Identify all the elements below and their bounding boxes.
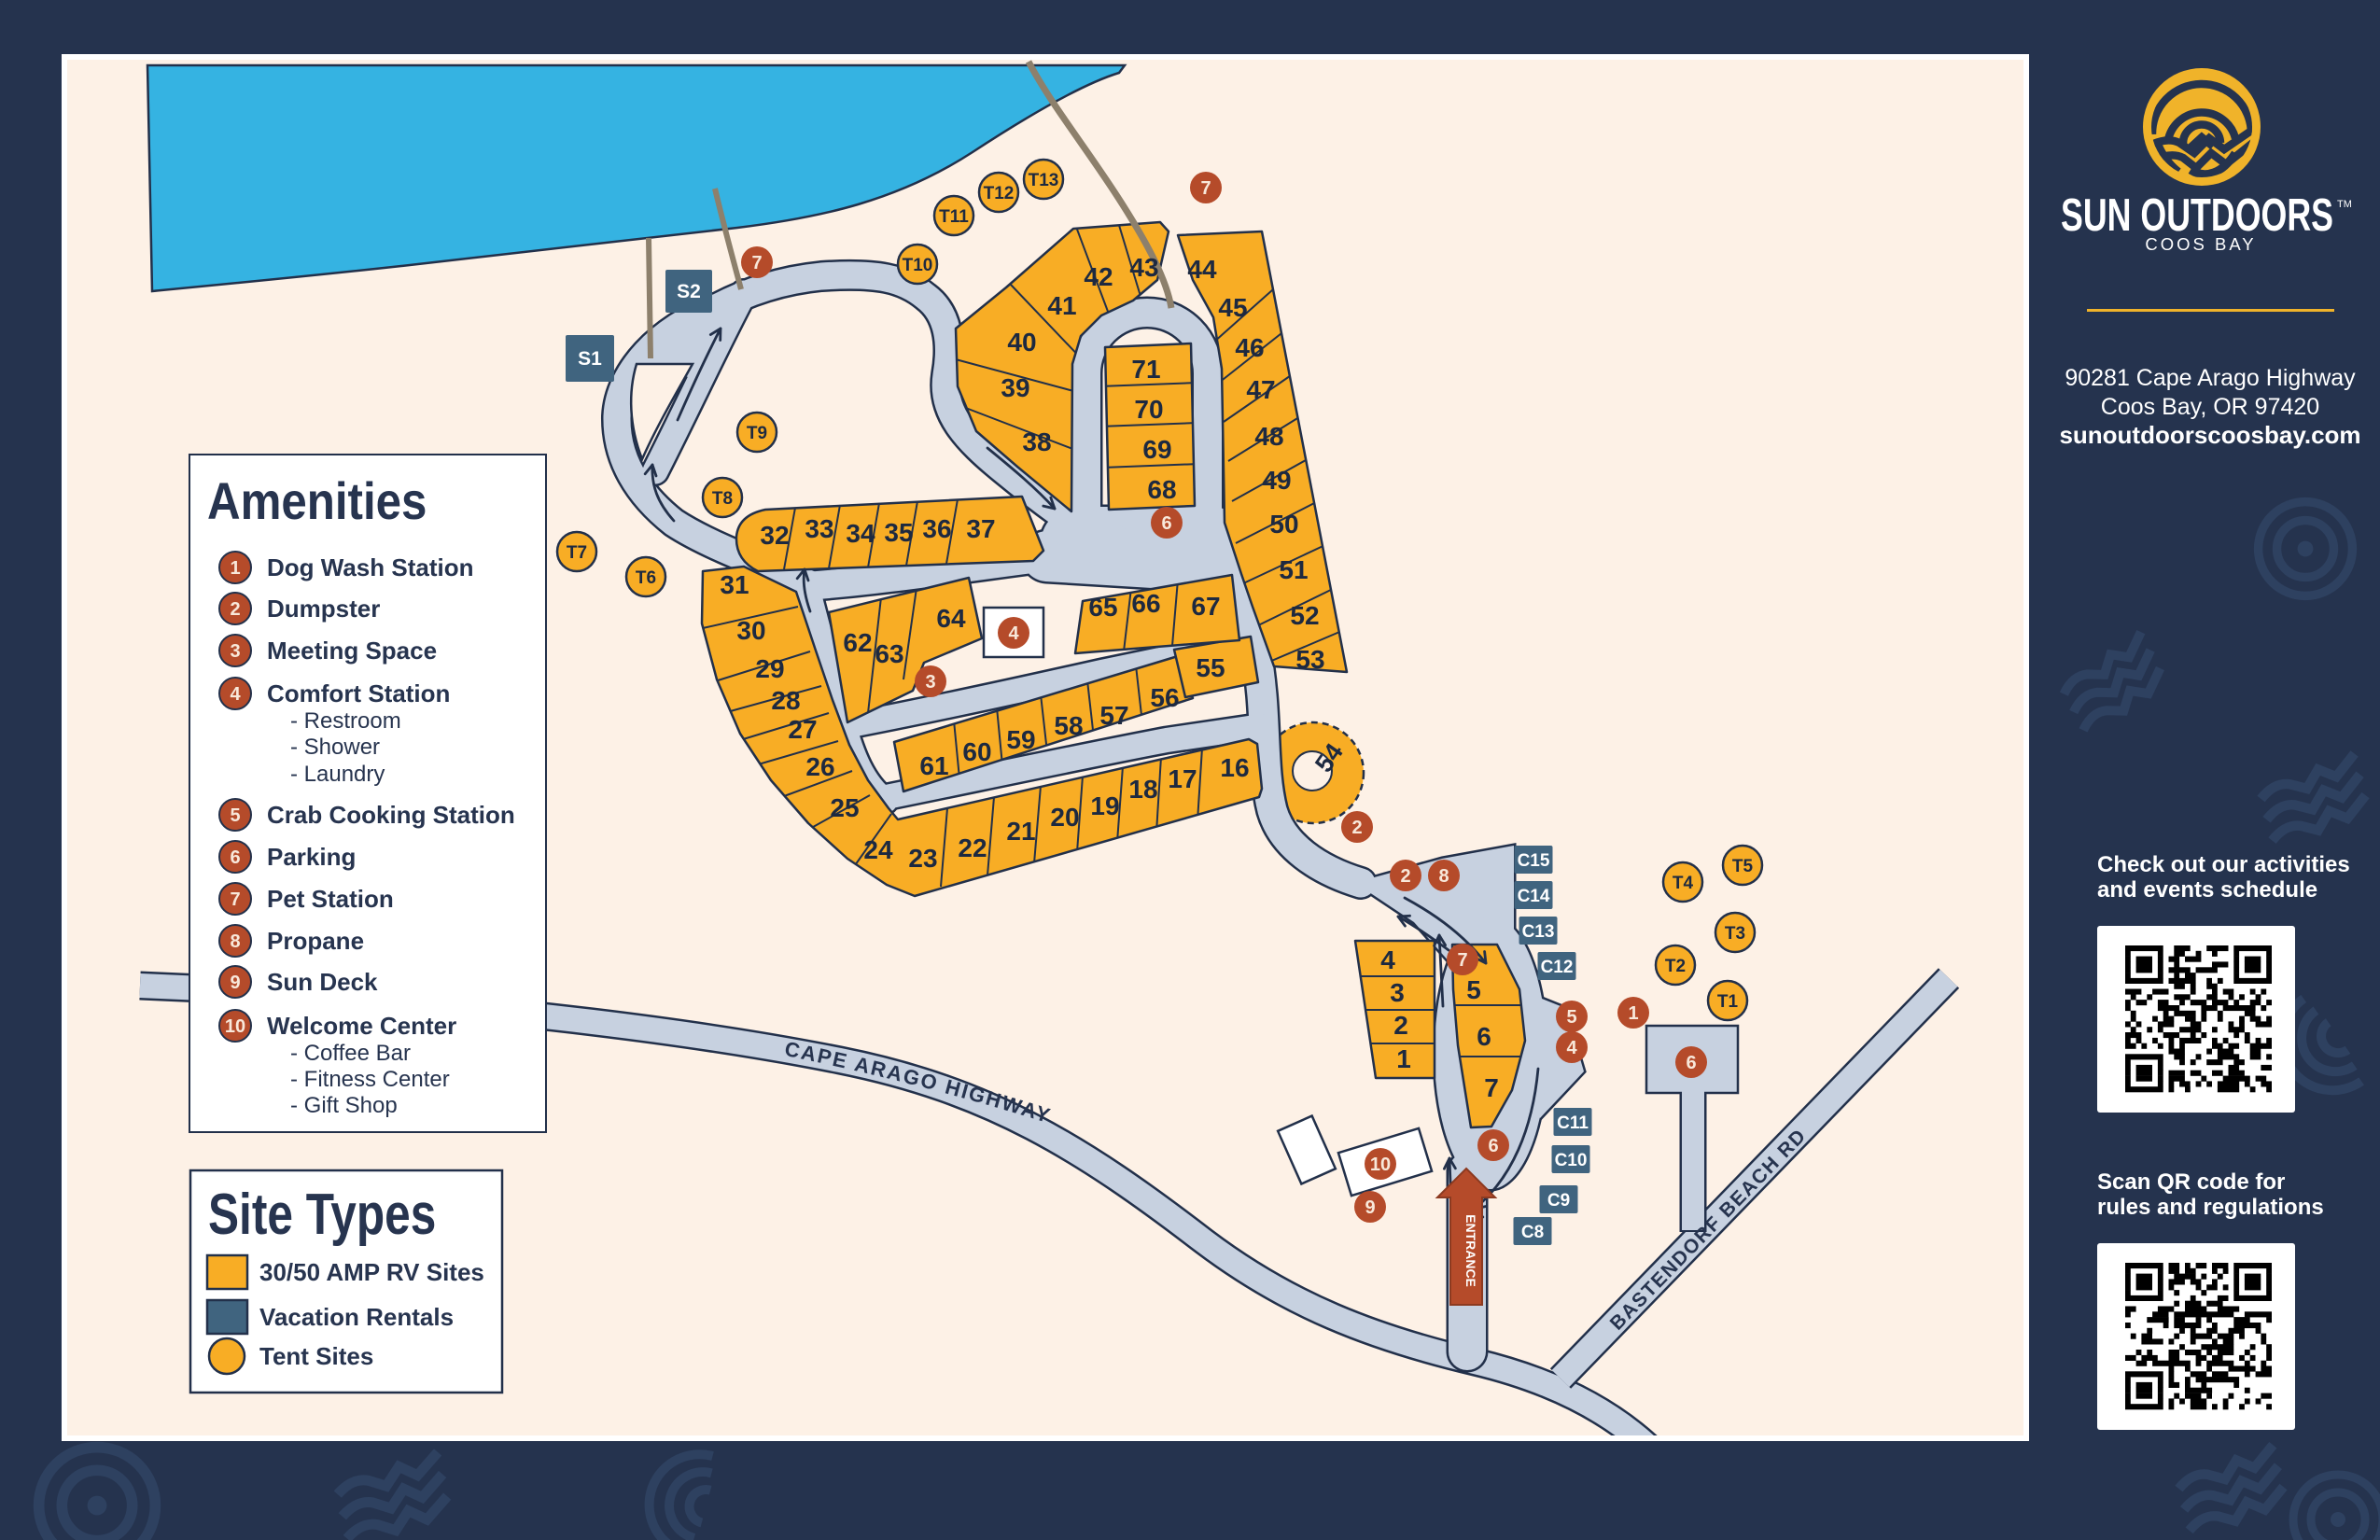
svg-text:32: 32	[760, 521, 789, 550]
svg-text:23: 23	[908, 844, 937, 873]
svg-text:Check out our activities: Check out our activities	[2097, 852, 2350, 877]
svg-text:8: 8	[230, 931, 240, 952]
svg-text:68: 68	[1147, 475, 1176, 504]
svg-text:49: 49	[1262, 466, 1291, 495]
svg-text:ENTRANCE: ENTRANCE	[1463, 1214, 1478, 1287]
svg-text:Meeting Space: Meeting Space	[267, 637, 437, 665]
svg-text:Parking: Parking	[267, 843, 356, 871]
svg-text:6: 6	[1686, 1053, 1696, 1073]
svg-text:64: 64	[936, 604, 966, 633]
svg-text:T3: T3	[1725, 924, 1745, 944]
svg-text:C15: C15	[1518, 851, 1550, 871]
svg-text:T13: T13	[1029, 171, 1059, 190]
svg-text:Tent Sites: Tent Sites	[259, 1342, 373, 1370]
svg-text:53: 53	[1295, 645, 1324, 674]
svg-text:46: 46	[1235, 333, 1264, 362]
svg-text:- Gift Shop: - Gift Shop	[290, 1093, 398, 1118]
svg-text:65: 65	[1088, 593, 1117, 622]
svg-text:4: 4	[1008, 623, 1019, 644]
svg-text:26: 26	[805, 752, 834, 781]
svg-text:Site Types: Site Types	[208, 1182, 436, 1247]
svg-text:5: 5	[1566, 1007, 1576, 1028]
svg-text:44: 44	[1187, 255, 1217, 284]
svg-text:Coos Bay, OR 97420: Coos Bay, OR 97420	[2101, 394, 2319, 420]
svg-text:9: 9	[230, 973, 240, 993]
svg-text:61: 61	[919, 751, 948, 780]
svg-text:T11: T11	[939, 207, 969, 227]
svg-text:Crab Cooking Station: Crab Cooking Station	[267, 801, 515, 829]
svg-text:Amenities: Amenities	[207, 472, 427, 531]
svg-text:2: 2	[1400, 866, 1410, 887]
svg-text:C9: C9	[1547, 1191, 1570, 1211]
svg-text:58: 58	[1054, 711, 1083, 740]
svg-text:C14: C14	[1518, 887, 1550, 906]
svg-text:35: 35	[884, 518, 913, 547]
svg-text:C8: C8	[1521, 1223, 1544, 1242]
svg-text:29: 29	[755, 654, 784, 683]
svg-text:Vacation Rentals: Vacation Rentals	[259, 1303, 454, 1331]
svg-text:2: 2	[230, 599, 240, 620]
svg-text:5: 5	[1466, 975, 1481, 1004]
svg-text:T1: T1	[1717, 992, 1739, 1012]
svg-text:66: 66	[1131, 589, 1160, 618]
svg-text:T2: T2	[1665, 957, 1686, 976]
svg-text:T10: T10	[903, 256, 933, 275]
svg-text:30/50 AMP RV Sites: 30/50 AMP RV Sites	[259, 1258, 484, 1286]
svg-text:Welcome Center: Welcome Center	[267, 1012, 456, 1040]
svg-text:Sun Deck: Sun Deck	[267, 968, 378, 996]
svg-text:37: 37	[966, 514, 995, 543]
svg-text:- Coffee Bar: - Coffee Bar	[290, 1041, 411, 1066]
svg-text:C10: C10	[1555, 1151, 1588, 1170]
svg-text:C13: C13	[1522, 922, 1555, 942]
svg-text:40: 40	[1007, 328, 1036, 357]
svg-text:2: 2	[1351, 818, 1362, 838]
svg-text:4: 4	[1380, 945, 1395, 974]
svg-text:and events schedule: and events schedule	[2097, 877, 2317, 903]
svg-text:59: 59	[1006, 725, 1035, 754]
svg-text:38: 38	[1022, 427, 1051, 456]
svg-text:17: 17	[1168, 764, 1197, 793]
svg-text:90281 Cape Arago Highway: 90281 Cape Arago Highway	[2065, 365, 2356, 391]
svg-text:7: 7	[230, 889, 240, 910]
svg-text:22: 22	[958, 833, 987, 862]
svg-text:45: 45	[1218, 293, 1247, 322]
svg-text:9: 9	[1365, 1197, 1375, 1218]
svg-text:1: 1	[1396, 1044, 1411, 1073]
svg-text:T4: T4	[1673, 874, 1694, 893]
svg-text:4: 4	[1566, 1038, 1577, 1058]
svg-text:55: 55	[1196, 653, 1225, 682]
svg-text:C11: C11	[1557, 1113, 1589, 1133]
svg-text:3: 3	[230, 641, 240, 662]
svg-text:COOS BAY: COOS BAY	[2145, 234, 2256, 254]
svg-text:25: 25	[830, 793, 859, 822]
svg-text:1: 1	[230, 558, 240, 579]
svg-text:71: 71	[1131, 355, 1160, 384]
svg-text:30: 30	[736, 616, 765, 645]
svg-text:62: 62	[843, 628, 872, 657]
svg-text:18: 18	[1128, 775, 1157, 804]
svg-text:10: 10	[225, 1016, 245, 1037]
svg-text:19: 19	[1090, 791, 1119, 820]
svg-text:- Restroom: - Restroom	[290, 708, 401, 734]
svg-text:TM: TM	[2337, 199, 2352, 210]
svg-text:7: 7	[751, 253, 762, 273]
svg-text:70: 70	[1134, 395, 1163, 424]
svg-text:24: 24	[863, 835, 893, 864]
svg-text:rules and regulations: rules and regulations	[2097, 1195, 2324, 1220]
svg-text:28: 28	[771, 686, 800, 715]
svg-text:39: 39	[1001, 373, 1029, 402]
svg-text:T12: T12	[984, 184, 1015, 203]
svg-text:20: 20	[1050, 803, 1079, 832]
svg-text:21: 21	[1006, 817, 1035, 846]
svg-text:S1: S1	[578, 348, 602, 370]
svg-text:10: 10	[1370, 1155, 1391, 1175]
svg-text:34: 34	[846, 519, 875, 548]
svg-text:42: 42	[1084, 262, 1113, 291]
svg-text:5: 5	[230, 805, 240, 826]
svg-text:67: 67	[1191, 592, 1220, 621]
svg-text:Scan QR code for: Scan QR code for	[2097, 1169, 2285, 1195]
svg-text:T6: T6	[636, 568, 656, 588]
svg-text:50: 50	[1269, 510, 1298, 539]
svg-text:16: 16	[1220, 753, 1249, 782]
svg-text:Pet Station: Pet Station	[267, 885, 394, 913]
svg-text:63: 63	[875, 639, 903, 668]
svg-text:Dumpster: Dumpster	[267, 595, 380, 623]
svg-text:- Fitness Center: - Fitness Center	[290, 1067, 450, 1092]
svg-text:41: 41	[1047, 291, 1076, 320]
svg-text:7: 7	[1200, 178, 1211, 199]
svg-text:sunoutdoorscoosbay.com: sunoutdoorscoosbay.com	[2059, 421, 2360, 449]
svg-text:27: 27	[788, 715, 817, 744]
svg-text:43: 43	[1129, 253, 1158, 282]
svg-text:2: 2	[1393, 1011, 1408, 1040]
svg-text:- Laundry: - Laundry	[290, 762, 385, 787]
svg-text:C12: C12	[1541, 958, 1574, 977]
svg-text:60: 60	[962, 737, 991, 766]
svg-text:1: 1	[1628, 1003, 1638, 1024]
svg-text:T5: T5	[1732, 857, 1754, 876]
svg-text:31: 31	[720, 570, 749, 599]
svg-text:6: 6	[230, 847, 240, 868]
svg-text:6: 6	[1488, 1136, 1498, 1156]
svg-text:6: 6	[1161, 513, 1171, 534]
svg-text:4: 4	[230, 684, 241, 705]
svg-text:8: 8	[1438, 866, 1449, 887]
svg-text:T9: T9	[747, 424, 767, 443]
svg-text:69: 69	[1142, 435, 1171, 464]
svg-text:T8: T8	[712, 489, 733, 509]
svg-text:7: 7	[1484, 1073, 1499, 1102]
svg-text:52: 52	[1290, 601, 1319, 630]
svg-text:56: 56	[1150, 683, 1179, 712]
svg-text:Dog Wash Station: Dog Wash Station	[267, 553, 473, 581]
svg-text:6: 6	[1477, 1022, 1491, 1051]
svg-text:3: 3	[1390, 978, 1405, 1007]
svg-text:48: 48	[1254, 422, 1283, 451]
svg-text:57: 57	[1099, 701, 1128, 730]
svg-text:T7: T7	[567, 543, 587, 563]
svg-text:51: 51	[1279, 555, 1308, 584]
svg-text:36: 36	[922, 514, 951, 543]
svg-text:- Shower: - Shower	[290, 735, 380, 760]
svg-text:33: 33	[805, 514, 833, 543]
svg-text:47: 47	[1246, 375, 1275, 404]
svg-text:S2: S2	[677, 281, 701, 302]
svg-text:3: 3	[925, 672, 935, 693]
svg-text:7: 7	[1457, 950, 1467, 971]
svg-text:Propane: Propane	[267, 927, 364, 955]
svg-text:Comfort Station: Comfort Station	[267, 679, 450, 707]
